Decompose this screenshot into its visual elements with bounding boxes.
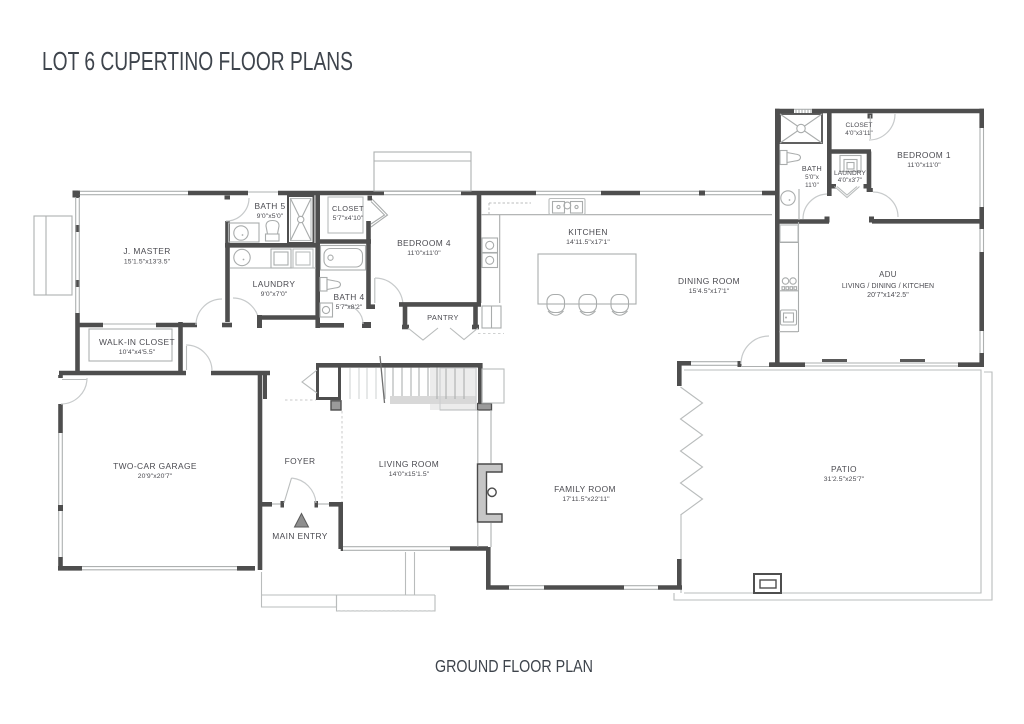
svg-text:11'0": 11'0" bbox=[805, 182, 819, 189]
svg-text:14'11.5"x17'1": 14'11.5"x17'1" bbox=[566, 239, 610, 246]
svg-text:DINING ROOM: DINING ROOM bbox=[678, 276, 740, 286]
svg-text:CLOSET: CLOSET bbox=[846, 122, 873, 129]
svg-text:FAMILY ROOM: FAMILY ROOM bbox=[554, 484, 616, 494]
svg-text:FOYER: FOYER bbox=[285, 456, 316, 466]
svg-text:GROUND FLOOR PLAN: GROUND FLOOR PLAN bbox=[435, 656, 593, 676]
svg-text:LOT 6 CUPERTINO FLOOR PLANS: LOT 6 CUPERTINO FLOOR PLANS bbox=[42, 48, 353, 76]
svg-text:PATIO: PATIO bbox=[831, 464, 857, 474]
svg-text:9'0"x5'0": 9'0"x5'0" bbox=[257, 213, 284, 220]
svg-text:PANTRY: PANTRY bbox=[427, 313, 459, 322]
svg-text:CLOSET: CLOSET bbox=[332, 204, 364, 213]
svg-text:31'2.5"x25'7": 31'2.5"x25'7" bbox=[824, 476, 865, 483]
svg-text:14'0"x15'1.5": 14'0"x15'1.5" bbox=[389, 471, 430, 478]
svg-text:LAUNDRY: LAUNDRY bbox=[253, 279, 296, 289]
svg-text:4'0"x3'11": 4'0"x3'11" bbox=[845, 130, 873, 137]
svg-text:TWO-CAR GARAGE: TWO-CAR GARAGE bbox=[113, 461, 197, 471]
svg-text:15'1.5"x13'3.5": 15'1.5"x13'3.5" bbox=[124, 259, 171, 266]
svg-text:LIVING ROOM: LIVING ROOM bbox=[379, 459, 439, 469]
svg-text:KITCHEN: KITCHEN bbox=[568, 227, 608, 237]
svg-text:9'0"x7'0": 9'0"x7'0" bbox=[261, 291, 288, 298]
svg-text:10'4"x4'5.5": 10'4"x4'5.5" bbox=[119, 349, 156, 356]
svg-text:WALK-IN CLOSET: WALK-IN CLOSET bbox=[99, 337, 175, 347]
svg-text:BATH 5: BATH 5 bbox=[254, 201, 285, 211]
svg-text:ADU: ADU bbox=[879, 270, 897, 279]
svg-text:LAUNDRY: LAUNDRY bbox=[834, 170, 867, 177]
svg-text:4'0"x3'7": 4'0"x3'7" bbox=[838, 177, 863, 184]
svg-text:15'4.5"x17'1": 15'4.5"x17'1" bbox=[689, 288, 730, 295]
svg-text:BATH: BATH bbox=[802, 164, 822, 173]
svg-text:5'0"x: 5'0"x bbox=[805, 174, 820, 181]
svg-text:BEDROOM 4: BEDROOM 4 bbox=[397, 238, 451, 248]
svg-text:11'0"x11'0": 11'0"x11'0" bbox=[907, 162, 941, 169]
svg-text:5'7"x8'2": 5'7"x8'2" bbox=[336, 304, 363, 311]
svg-text:20'9"x20'7": 20'9"x20'7" bbox=[138, 473, 173, 480]
svg-text:J. MASTER: J. MASTER bbox=[123, 246, 170, 256]
svg-text:11'0"x11'0": 11'0"x11'0" bbox=[407, 250, 441, 257]
svg-text:17'11.5"x22'11": 17'11.5"x22'11" bbox=[562, 496, 610, 503]
svg-text:5'7"x4'10": 5'7"x4'10" bbox=[333, 215, 364, 222]
svg-text:LIVING / DINING / KITCHEN: LIVING / DINING / KITCHEN bbox=[842, 283, 934, 290]
svg-text:20'7"x14'2.5": 20'7"x14'2.5" bbox=[867, 292, 909, 299]
svg-text:BEDROOM 1: BEDROOM 1 bbox=[897, 150, 951, 160]
svg-text:MAIN ENTRY: MAIN ENTRY bbox=[272, 531, 328, 541]
svg-text:BATH 4: BATH 4 bbox=[333, 292, 364, 302]
